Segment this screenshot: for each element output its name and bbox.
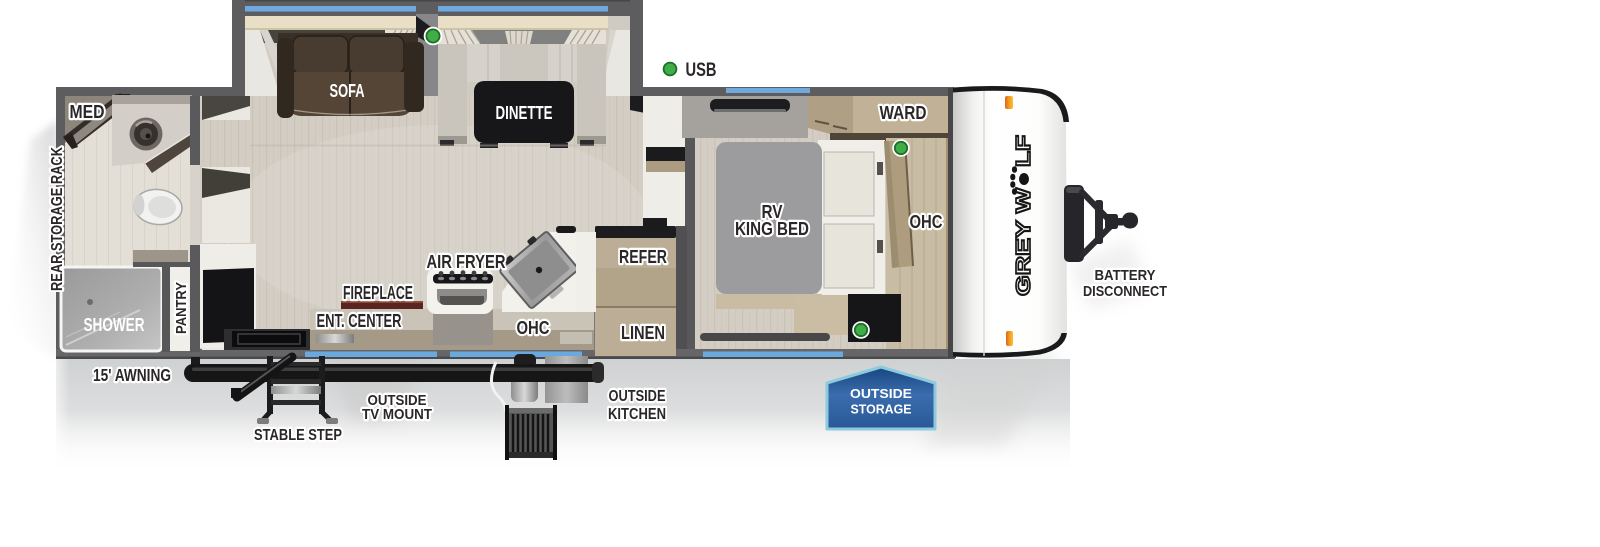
svg-text:REAR STORAGE RACK: REAR STORAGE RACK [49,147,66,291]
svg-text:OUTSIDE: OUTSIDE [850,386,912,401]
svg-text:STORAGE: STORAGE [851,402,912,417]
svg-text:DINETTE: DINETTE [496,103,553,123]
svg-text:GREY W: GREY W [1013,188,1035,296]
svg-text:REFER: REFER [619,247,667,267]
svg-text:LF: LF [1013,135,1035,167]
svg-text:USB: USB [686,60,717,81]
svg-text:ENT. CENTER: ENT. CENTER [317,311,402,331]
svg-text:OUTSIDE: OUTSIDE [609,388,666,405]
svg-text:AIR FRYER: AIR FRYER [427,252,506,272]
svg-text:SHOWER: SHOWER [84,315,145,335]
svg-text:KING BED: KING BED [735,219,809,239]
svg-text:SOFA: SOFA [330,81,365,101]
svg-text:DISCONNECT: DISCONNECT [1083,283,1167,300]
svg-text:MED: MED [70,102,105,122]
svg-text:PANTRY: PANTRY [173,282,190,334]
svg-text:STABLE STEP: STABLE STEP [254,427,342,444]
svg-text:OHC: OHC [910,212,943,232]
svg-text:LINEN: LINEN [621,323,665,343]
svg-text:TV MOUNT: TV MOUNT [362,406,432,423]
svg-text:WARD: WARD [880,103,927,123]
svg-text:15' AWNING: 15' AWNING [93,365,171,385]
svg-text:OHC: OHC [517,318,550,338]
svg-text:BATTERY: BATTERY [1095,267,1156,284]
svg-text:KITCHEN: KITCHEN [608,406,666,423]
svg-text:FIREPLACE: FIREPLACE [343,283,413,303]
